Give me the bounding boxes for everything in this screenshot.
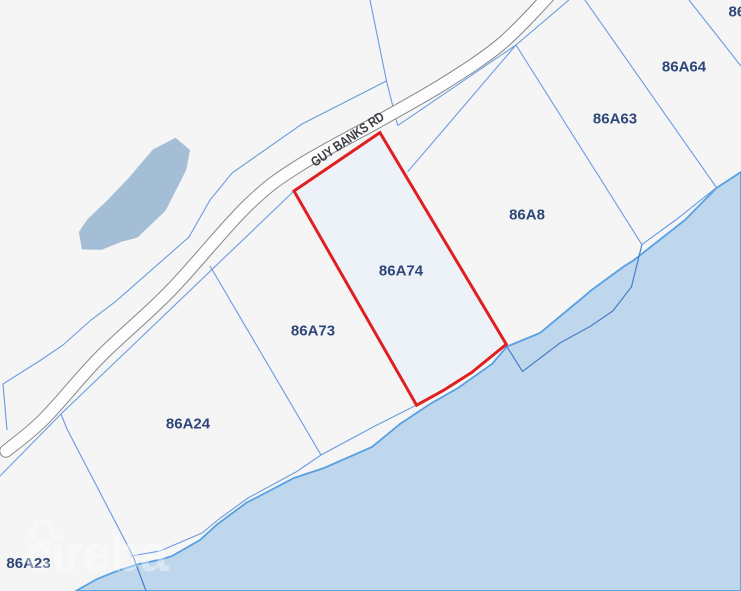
svg-text:86A73: 86A73 bbox=[291, 322, 335, 339]
svg-text:86A74: 86A74 bbox=[379, 262, 424, 279]
svg-text:86A24: 86A24 bbox=[166, 415, 211, 432]
svg-text:cireba: cireba bbox=[24, 526, 169, 582]
svg-text:86A6: 86A6 bbox=[729, 4, 741, 21]
svg-text:86A8: 86A8 bbox=[509, 206, 545, 223]
svg-text:86A63: 86A63 bbox=[593, 110, 637, 127]
svg-text:86A64: 86A64 bbox=[662, 58, 707, 75]
